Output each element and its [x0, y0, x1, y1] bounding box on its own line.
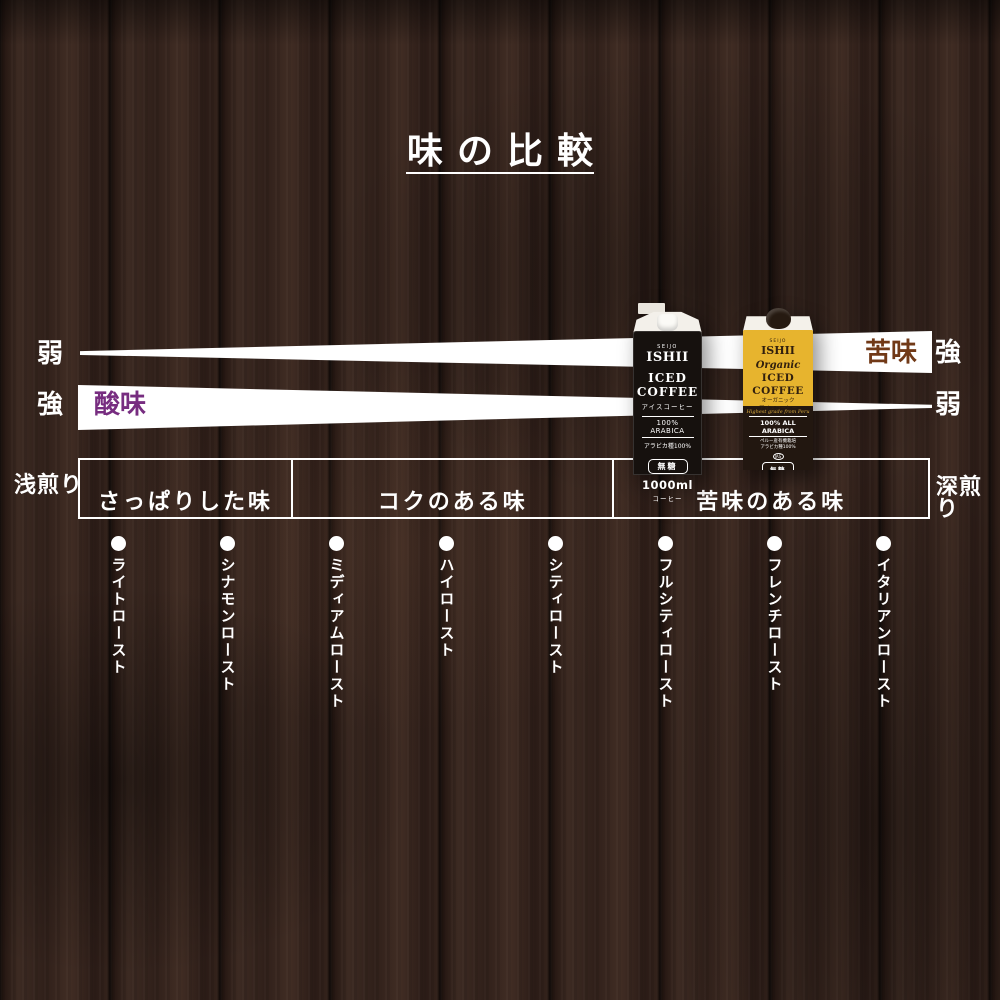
roast-level-label: ミディアムロースト: [329, 557, 344, 710]
roast-dot-icon: [220, 536, 235, 551]
acidity-left-level: 強: [37, 392, 63, 418]
scale-right-label: 深煎り: [936, 477, 1000, 521]
product-name-line1: ICED: [648, 371, 687, 385]
brand-logo: ISHII: [761, 344, 795, 357]
carton-cap: [766, 308, 791, 329]
roast-dot-icon: [876, 536, 891, 551]
product-name-line1: ICED: [762, 372, 794, 385]
infographic-canvas: 味の比較 弱 強 強 弱 苦味 酸味 浅煎り さっぱりした味 コクのある味 苦味…: [0, 0, 1000, 1000]
roast-level-label: シナモンロースト: [220, 557, 235, 693]
volume-label: 1000ml: [642, 478, 693, 492]
roast-dot-icon: [767, 536, 782, 551]
title-underline: [406, 172, 594, 174]
carton-upper-panel: SEIJO ISHII Organic ICED COFFEE オーガニック ア…: [743, 330, 813, 406]
roast-dot-icon: [329, 536, 344, 551]
page-title: 味の比較: [0, 122, 1000, 174]
product-name-line2: COFFEE: [752, 385, 803, 398]
carton-body: SEIJO ISHII ICED COFFEE アイスコーヒー 100% ARA…: [633, 331, 702, 475]
acidity-right-level: 弱: [935, 392, 961, 418]
roast-level-label: シティロースト: [548, 557, 563, 676]
acidity-label: 酸味: [94, 392, 146, 418]
organic-coffee-carton: SEIJO ISHII Organic ICED COFFEE オーガニック ア…: [743, 308, 813, 470]
roast-level-label: ライトロースト: [111, 557, 126, 676]
brand-logo: ISHII: [646, 350, 688, 365]
organic-jas-mark-icon: JAS: [773, 453, 784, 460]
product-name-jp: アイスコーヒー: [642, 401, 694, 411]
carton-cap: [657, 314, 678, 331]
scale-section-refreshing: さっぱりした味: [80, 460, 291, 517]
roast-level-label: ハイロースト: [439, 557, 454, 659]
roast-level-medium: ミディアムロースト: [321, 536, 351, 710]
organic-script-label: Organic: [756, 360, 801, 371]
arabica-claim: 100% ARABICA: [642, 416, 694, 438]
bitterness-right-level: 強: [935, 340, 961, 366]
roast-dot-icon: [439, 536, 454, 551]
roast-dot-icon: [548, 536, 563, 551]
origin-claim-jp2: アラビカ種100%: [760, 445, 795, 451]
roast-level-city: シティロースト: [540, 536, 570, 676]
product-name-line2: COFFEE: [637, 385, 698, 399]
bitterness-label: 苦味: [858, 340, 924, 366]
roast-dot-icon: [658, 536, 673, 551]
roast-level-label: フレンチロースト: [767, 557, 782, 693]
unsweetened-badge: 無糖: [648, 459, 688, 474]
roast-level-label: フルシティロースト: [658, 557, 673, 710]
roast-level-high: ハイロースト: [431, 536, 461, 659]
black-coffee-carton: SEIJO ISHII ICED COFFEE アイスコーヒー 100% ARA…: [633, 303, 702, 475]
roast-dot-icon: [111, 536, 126, 551]
roast-level-cinnamon: シナモンロースト: [212, 536, 242, 693]
type-label-jp: コーヒー: [653, 493, 683, 503]
scale-section-rich: コクのある味: [291, 460, 612, 517]
carton-lower-panel: Highest grade from Peru 100% ALL ARABICA…: [743, 406, 813, 470]
arabica-claim: 100% ALL ARABICA: [749, 416, 807, 437]
roast-level-fullcity: フルシティロースト: [650, 536, 680, 710]
unsweetened-badge: 無糖: [762, 462, 794, 470]
roast-level-label: イタリアンロースト: [876, 557, 891, 710]
scale-left-label: 浅煎り: [14, 475, 83, 497]
carton-body: SEIJO ISHII Organic ICED COFFEE オーガニック ア…: [743, 330, 813, 470]
roast-level-french: フレンチロースト: [759, 536, 789, 693]
roast-level-light: ライトロースト: [103, 536, 133, 676]
product-name-jp1: オーガニック: [761, 398, 794, 405]
grade-script-label: Highest grade from Peru: [746, 409, 809, 415]
arabica-claim-jp: アラビカ種100%: [644, 441, 691, 450]
roast-level-italian: イタリアンロースト: [868, 536, 898, 710]
bitterness-left-level: 弱: [37, 341, 63, 367]
